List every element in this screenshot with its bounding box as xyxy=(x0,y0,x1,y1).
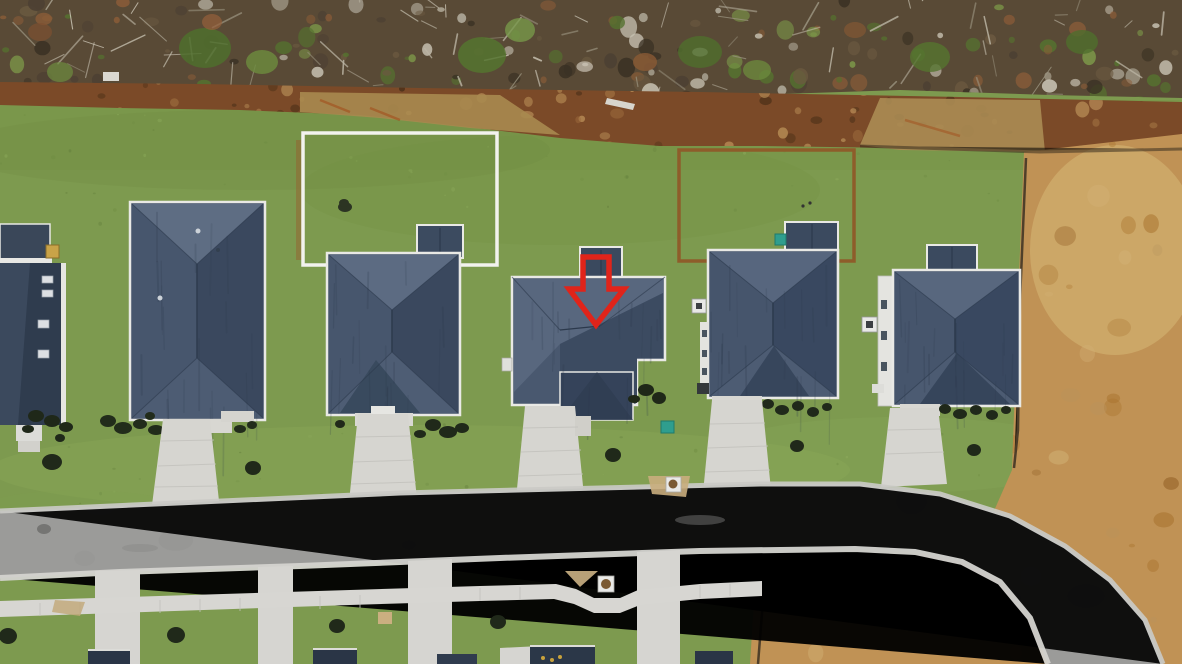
grass-speckle-back-speck xyxy=(653,147,657,152)
grass-speckle-back-speck xyxy=(743,152,746,155)
house-3-roof-streaks-speck xyxy=(651,327,652,363)
house-4-ac-unit xyxy=(697,383,709,394)
tree-canopy-texture-speck xyxy=(1121,79,1132,87)
house-0-bush-1 xyxy=(28,410,44,422)
house-2-bush-2 xyxy=(439,426,457,438)
house-0-roof-vent-1 xyxy=(42,276,53,283)
lower-tree-4 xyxy=(490,615,506,629)
house-1-roof-streaks-speck xyxy=(252,334,253,389)
grass-speckle-front-speck xyxy=(341,433,343,435)
grass-speckle-back-speck xyxy=(607,206,609,208)
house-5-side-window-1 xyxy=(881,300,887,309)
house-3-bush-1 xyxy=(638,384,654,396)
tree-canopy-texture-speck xyxy=(850,61,856,68)
conifer-4 xyxy=(505,18,535,42)
house-2-roof-streaks-speck xyxy=(359,321,360,374)
house-4-bush-2 xyxy=(775,405,789,415)
grass-speckle-back-speck xyxy=(857,152,860,155)
dirt-strip-texture-speck xyxy=(600,132,611,139)
house-0-play-structure xyxy=(46,245,59,258)
bird-dot-1 xyxy=(801,204,804,207)
house-3-driveway xyxy=(516,406,584,499)
house-2-roof-streaks-speck xyxy=(353,337,354,363)
grass-speckle-front-speck xyxy=(239,452,241,454)
house-2-driveway xyxy=(349,414,417,502)
grass-speckle-back-speck xyxy=(356,160,358,161)
dirt-strip-texture-speck xyxy=(232,104,237,107)
house-5-roof-streaks-speck xyxy=(955,339,956,387)
house-0-garage-trim xyxy=(0,258,52,263)
grass-speckle-back-speck xyxy=(835,178,838,180)
road-patch-1 xyxy=(122,544,158,552)
grass-speckle-front-speck xyxy=(846,456,849,458)
house-2-bush-3 xyxy=(455,423,469,433)
house-4-roof-streaks-speck xyxy=(813,308,814,342)
grass-speckle-back-speck xyxy=(349,156,353,159)
grass-speckle-back-speck xyxy=(444,172,447,175)
grass-speckle-back-speck xyxy=(117,114,119,115)
dirt-strip-texture-speck xyxy=(811,116,823,124)
dirt-strip-texture-speck xyxy=(524,97,533,107)
dirt-lot-texture-speck xyxy=(1049,450,1069,464)
tree-canopy-texture-speck xyxy=(789,43,799,51)
front-tree-5 xyxy=(967,444,981,456)
house-1-roof-vent-b xyxy=(158,296,163,301)
grass-speckle-back-speck xyxy=(98,222,102,226)
tree-canopy-texture-speck xyxy=(317,34,329,44)
house-2-roof-streaks-speck xyxy=(336,265,337,315)
tree-canopy-texture-speck xyxy=(98,55,105,60)
tree-canopy-texture-speck xyxy=(114,17,120,24)
dirt-lot-texture-speck xyxy=(1080,345,1095,362)
house-1-side-pad xyxy=(221,411,254,422)
dirt-lot-texture-speck xyxy=(1147,560,1159,572)
conifer-5 xyxy=(678,36,722,68)
house-5-bush-2 xyxy=(953,409,967,419)
grass-speckle-front-speck xyxy=(236,480,240,482)
bird-dot-2 xyxy=(808,201,811,204)
grass-speckle-back-speck xyxy=(546,156,548,157)
tree-canopy-texture-speck xyxy=(1152,23,1159,28)
dirt-lot-texture-speck xyxy=(1152,244,1162,256)
tree-canopy-texture-speck xyxy=(409,54,416,62)
dirt-lot-texture-speck xyxy=(1121,216,1136,234)
conifer-2 xyxy=(246,50,278,74)
grass-speckle-back-speck xyxy=(24,114,26,115)
lower-tree-2 xyxy=(167,627,185,643)
house-2-bush-5 xyxy=(335,420,345,428)
tree-canopy-texture-speck xyxy=(727,55,743,69)
lower-roof-2 xyxy=(313,649,357,664)
lower-roof-4 xyxy=(530,646,595,664)
tree-canopy-texture-speck xyxy=(867,48,877,59)
house-4-bush-4 xyxy=(807,407,819,417)
grass-speckle-back-speck xyxy=(264,142,268,144)
house-1-bush-6 xyxy=(145,412,155,420)
utility-marker-1-glyph xyxy=(696,303,702,309)
grass-speckle-front-speck xyxy=(113,491,115,493)
dirt-strip-texture-speck xyxy=(853,130,863,142)
grass-speckle-front-speck xyxy=(694,449,698,453)
tree-canopy-texture-speck xyxy=(144,17,159,26)
house-2-bush-4 xyxy=(414,430,426,438)
tree-canopy-texture-speck xyxy=(690,78,705,88)
conifer-7 xyxy=(910,42,950,72)
grass-speckle-front-speck xyxy=(308,435,312,438)
house-1-roof-vent-a xyxy=(196,229,201,234)
tree-canopy-texture-speck xyxy=(2,47,9,52)
utility-box-teal-2 xyxy=(775,234,786,245)
tree-canopy-texture-speck xyxy=(343,53,349,57)
grass-speckle-back-speck xyxy=(451,187,455,192)
grass-speckle-back-speck xyxy=(988,193,991,194)
house-1-bush-2 xyxy=(114,422,132,434)
tree-canopy-texture-speck xyxy=(1110,11,1117,18)
dirt-strip-texture-speck xyxy=(850,108,856,113)
house-5-bush-3 xyxy=(970,405,982,415)
utility-marker-2-glyph xyxy=(866,321,873,328)
dirt-strip-texture-speck xyxy=(556,93,567,103)
dirt-strip-texture-speck xyxy=(795,107,802,114)
dirt-lot-texture-speck xyxy=(1045,292,1053,297)
house-4-side-window-1 xyxy=(702,330,707,337)
tree-canopy-texture-speck xyxy=(1086,80,1102,94)
tree-band xyxy=(0,0,1182,98)
house-5-bush-4 xyxy=(986,410,998,420)
grass-speckle-back-speck xyxy=(997,199,999,201)
tree-canopy-texture-speck xyxy=(830,15,836,21)
grass-speckle-back-speck xyxy=(408,176,411,178)
tree-canopy-texture-speck xyxy=(540,0,556,10)
grass-speckle-back-speck xyxy=(93,193,96,195)
house-1-roof-streaks-speck xyxy=(226,302,227,333)
house-5-side-window-2 xyxy=(881,331,887,340)
conifer-8 xyxy=(1066,30,1098,54)
dirt-lot-texture-speck xyxy=(1154,512,1175,527)
grass-speckle-front-speck xyxy=(465,485,469,489)
tree-canopy-texture-speck xyxy=(325,14,332,22)
house-4-roof-streaks-speck xyxy=(784,292,785,329)
dirt-lot-texture-speck xyxy=(1032,470,1041,476)
dirt-strip-texture-speck xyxy=(576,91,582,95)
tree-canopy-texture-speck xyxy=(1009,51,1018,59)
tree-canopy-texture-speck xyxy=(1142,48,1155,61)
house-3-roof-streaks-speck xyxy=(627,378,628,423)
tree-canopy-texture-speck xyxy=(298,27,315,48)
grass-speckle-back-speck xyxy=(158,119,162,122)
tree-canopy-texture-speck xyxy=(1009,37,1015,43)
house-3-roof-streaks-speck xyxy=(660,311,661,339)
tree-canopy-texture-speck xyxy=(422,43,432,56)
house-4-side-window-2 xyxy=(702,350,707,357)
tree-canopy-texture-speck xyxy=(82,21,93,33)
tree-canopy-texture-speck xyxy=(1070,79,1080,87)
grass-speckle-back-speck xyxy=(4,154,7,157)
dirt-strip-texture-speck xyxy=(1150,122,1158,128)
tree-canopy-texture-speck xyxy=(639,13,648,22)
tree-canopy-texture-speck xyxy=(1044,45,1053,55)
tree-canopy-texture-speck xyxy=(675,76,689,88)
grass-speckle-front-speck xyxy=(259,478,261,479)
house-3-roof-streaks-speck xyxy=(619,297,620,339)
tree-canopy-texture-speck xyxy=(1004,15,1015,25)
tree-canopy-texture-speck xyxy=(549,50,563,63)
dirt-lot-texture-speck xyxy=(1066,285,1073,290)
dirt-lot-texture-speck xyxy=(1054,226,1076,246)
house-5-roof-streaks-speck xyxy=(924,347,925,392)
grass-speckle-front-speck xyxy=(79,503,81,504)
tree-canopy-texture-speck xyxy=(559,65,573,79)
dirt-strip-texture-speck xyxy=(850,116,856,123)
lower-roof-1 xyxy=(88,650,130,664)
tree-canopy-texture-speck xyxy=(71,76,79,83)
grass-speckle-back-speck xyxy=(924,175,927,178)
house-0-roof-vent-4 xyxy=(38,350,49,358)
conifer-3 xyxy=(458,37,506,73)
tree-canopy-texture-speck xyxy=(923,81,931,91)
grass-speckle-back-speck xyxy=(143,154,146,157)
grass-speckle-back-speck xyxy=(466,206,468,208)
conifer-6 xyxy=(743,60,771,80)
house-5-ac-unit xyxy=(872,384,884,393)
house-5-side-window-3 xyxy=(881,362,887,371)
tree-canopy-texture-speck xyxy=(1160,82,1171,93)
tree-canopy-texture-speck xyxy=(1172,50,1179,56)
tree-canopy-texture-speck xyxy=(313,53,328,69)
tree-canopy-texture-speck xyxy=(188,74,196,80)
house-4-roof-streaks-speck xyxy=(802,290,803,341)
tree-canopy-texture-speck xyxy=(966,38,981,52)
road-smudges-speck xyxy=(74,551,94,566)
tree-canopy-texture-speck xyxy=(1016,72,1032,88)
house-0-bush-4 xyxy=(22,425,34,433)
lower-roof-3 xyxy=(437,654,477,664)
conifer-1 xyxy=(179,28,231,68)
dirt-lot-texture-speck xyxy=(1087,185,1110,207)
dirt-lot-texture-speck xyxy=(1039,265,1059,285)
tree-canopy-texture-speck xyxy=(1147,74,1161,86)
conifer-9 xyxy=(47,62,73,82)
grass-speckle-front-speck xyxy=(978,474,980,476)
house-3-roof-streaks-speck xyxy=(542,317,543,349)
grass-speckle-back-speck xyxy=(487,146,489,148)
tree-canopy-texture-speck xyxy=(1137,30,1143,36)
front-tree-1 xyxy=(42,454,62,470)
tree-canopy-texture-speck xyxy=(312,67,324,78)
house-2-roof-streaks-speck xyxy=(369,371,370,416)
tree-canopy-texture-speck xyxy=(937,33,943,39)
grass-speckle-front-speck xyxy=(425,483,429,486)
lower-roof-dot-1 xyxy=(541,656,545,660)
tree-canopy-texture-speck xyxy=(848,41,860,55)
house-1-bush-7 xyxy=(234,425,246,433)
grass-speckle-back-speck xyxy=(410,171,412,173)
dirt-strip-texture-speck xyxy=(575,116,581,123)
dirt-strip-texture-speck xyxy=(1075,102,1089,118)
dirt-lot-texture-speck xyxy=(1129,544,1135,548)
tree-canopy-texture-speck xyxy=(777,20,794,40)
rust-foliage-2 xyxy=(202,14,222,30)
grass-speckle-back-speck xyxy=(65,192,67,194)
dirt-strip-texture-speck xyxy=(1092,119,1099,127)
tree-canopy-texture-speck xyxy=(609,16,625,29)
tree-canopy-texture-speck xyxy=(541,76,547,83)
tree-branch-texture-speck xyxy=(446,5,447,17)
tree-canopy-texture-speck xyxy=(0,16,6,20)
house-0-bush-3 xyxy=(59,422,73,432)
grass-speckle-front-speck xyxy=(68,446,71,448)
house-2-porch-step xyxy=(371,406,395,414)
tree-canopy-texture-speck xyxy=(793,68,808,84)
lower-roof-dot-2 xyxy=(550,658,554,662)
house-3-bush-2 xyxy=(652,392,666,404)
dirt-lot-texture-speck xyxy=(1106,528,1120,539)
house-1-driveway xyxy=(152,419,219,505)
dirt-lot-texture-speck xyxy=(1163,477,1179,490)
tree-canopy-texture-speck xyxy=(175,6,187,16)
house-2-bush-1 xyxy=(425,419,441,431)
grass-speckle-back-speck xyxy=(444,195,446,196)
house-3-walk-pad xyxy=(575,416,591,436)
front-tree-2 xyxy=(245,461,261,475)
tree-canopy-texture-speck xyxy=(10,56,24,74)
grass-speckle-front-speck xyxy=(620,436,623,438)
house-2-roof-streaks-speck xyxy=(386,346,387,396)
dirt-strip-texture-speck xyxy=(98,93,106,98)
dirt-strip-texture-speck xyxy=(170,98,179,107)
house-1-bush-3 xyxy=(133,419,147,429)
grass-speckle-front-speck xyxy=(112,468,115,470)
house-0-bush-2 xyxy=(44,415,60,427)
tree-canopy-texture-speck xyxy=(690,20,701,27)
tree-canopy-texture-speck xyxy=(468,21,475,27)
grass-speckle-back-speck xyxy=(224,184,226,186)
lower-roof-5 xyxy=(695,651,733,664)
house-3-roof-streaks-speck xyxy=(631,304,632,326)
dirt-lot-texture-speck xyxy=(1150,617,1157,623)
dirt-lot-texture-speck xyxy=(1061,388,1081,402)
rust-foliage-3 xyxy=(28,23,52,41)
dirt-lot-texture-speck xyxy=(808,644,823,663)
dirt-lot-texture-speck xyxy=(1107,319,1131,337)
dirt-lot-texture-speck xyxy=(1143,214,1159,233)
tree-canopy-texture-speck xyxy=(1096,67,1114,81)
house-0-bush-5 xyxy=(55,434,65,442)
tree-canopy-texture-speck xyxy=(881,36,887,40)
tree-canopy-texture-speck xyxy=(755,33,763,38)
scene-canvas xyxy=(0,0,1182,664)
utility-box-teal-1 xyxy=(661,421,674,433)
road-patch-2 xyxy=(675,515,725,525)
house-4-roof-streaks-speck xyxy=(784,360,785,379)
house-1-roof-streaks-speck xyxy=(227,237,228,294)
dirt-strip-texture-speck xyxy=(610,108,624,118)
curb-driveway-3 xyxy=(408,559,452,664)
house-5-driveway xyxy=(881,408,947,487)
house-4-bush-1 xyxy=(762,399,774,409)
lower-roof-dot-3 xyxy=(558,655,562,659)
tree-canopy-texture-speck xyxy=(229,59,238,65)
tree-canopy-texture-speck xyxy=(537,36,542,41)
tree-branch-texture-speck xyxy=(359,0,360,2)
grass-speckle-front-speck xyxy=(99,492,102,495)
grass-speckle-back-speck xyxy=(580,178,584,181)
grass-speckle-front-speck xyxy=(836,463,838,466)
tree-canopy-texture-speck xyxy=(415,11,425,17)
tree-canopy-texture-speck xyxy=(34,41,50,55)
road-manhole xyxy=(37,524,51,534)
house-5-bush-5 xyxy=(1001,406,1011,414)
house-4-bush-3 xyxy=(792,401,804,411)
tree-canopy-texture-speck xyxy=(279,55,287,61)
house-4-roof-streaks-speck xyxy=(746,346,747,397)
tree-canopy-texture-speck xyxy=(376,17,385,22)
house-1-roof-streaks-speck xyxy=(162,286,163,335)
house-5-bush-1 xyxy=(939,404,951,414)
house-0-walk-pad xyxy=(18,441,40,452)
tree-canopy-texture-speck xyxy=(382,70,391,76)
grass-speckle-back-speck xyxy=(791,185,793,187)
grass-speckle-front-speck xyxy=(602,474,604,475)
grass-speckle-back-speck xyxy=(626,175,629,178)
house-3-ac-unit xyxy=(502,358,512,371)
grass-speckle-back-speck xyxy=(0,162,2,164)
dirt-strip-texture-speck xyxy=(290,105,300,113)
house-4-bush-5 xyxy=(822,403,832,411)
tree-canopy-texture-speck xyxy=(715,8,721,14)
dirt-strip-texture-speck xyxy=(841,138,846,142)
house-4-side-window-3 xyxy=(702,368,707,375)
curb-driveway-4 xyxy=(637,550,680,664)
tree-canopy-texture-speck xyxy=(604,53,617,68)
white-debris xyxy=(103,72,119,81)
tree-branch-texture-speck xyxy=(189,10,224,11)
yard-sand-square xyxy=(378,612,392,624)
tree-canopy-texture-speck xyxy=(393,52,400,58)
house-5-roof-streaks-speck xyxy=(1012,355,1013,384)
tree-canopy-texture-speck xyxy=(275,41,292,54)
rust-foliage-4 xyxy=(844,22,866,38)
dirt-lot-texture-speck xyxy=(1090,402,1107,415)
house-2-roof-streaks-speck xyxy=(334,284,335,328)
dirt-strip-texture-speck xyxy=(778,127,788,138)
curb-driveway-2 xyxy=(258,566,293,664)
grass-speckle-front-speck xyxy=(139,478,141,480)
house-2-roof-streaks-speck xyxy=(443,307,444,347)
storm-manhole-lid-1 xyxy=(669,480,678,489)
house-4-roof-streaks-speck xyxy=(737,283,738,337)
house-0-roof-vent-3 xyxy=(38,320,49,328)
tree-canopy-texture-speck xyxy=(1159,60,1172,75)
house-3-bush-3 xyxy=(628,395,640,403)
lower-tree-3 xyxy=(329,619,345,633)
aerial-photo xyxy=(0,0,1182,664)
dirt-lot-texture-speck xyxy=(1119,250,1132,264)
house-2-roof-streaks-speck xyxy=(406,262,407,285)
tree-canopy-texture-speck xyxy=(576,61,593,72)
tree-canopy-texture-speck xyxy=(702,73,708,81)
tan-rock-patch-right xyxy=(860,98,1045,152)
house-4-roof-streaks-speck xyxy=(815,372,816,406)
tree-canopy-texture-speck xyxy=(457,13,466,23)
front-tree-4 xyxy=(790,440,804,452)
tree-canopy-texture-speck xyxy=(293,44,300,48)
storm-manhole-lid-2 xyxy=(601,579,611,589)
tree-canopy-texture-speck xyxy=(994,4,1004,10)
grass-speckle-back-speck xyxy=(949,160,951,161)
grass-speckle-back-speck xyxy=(113,208,117,211)
tree-canopy-texture-speck xyxy=(836,77,842,83)
